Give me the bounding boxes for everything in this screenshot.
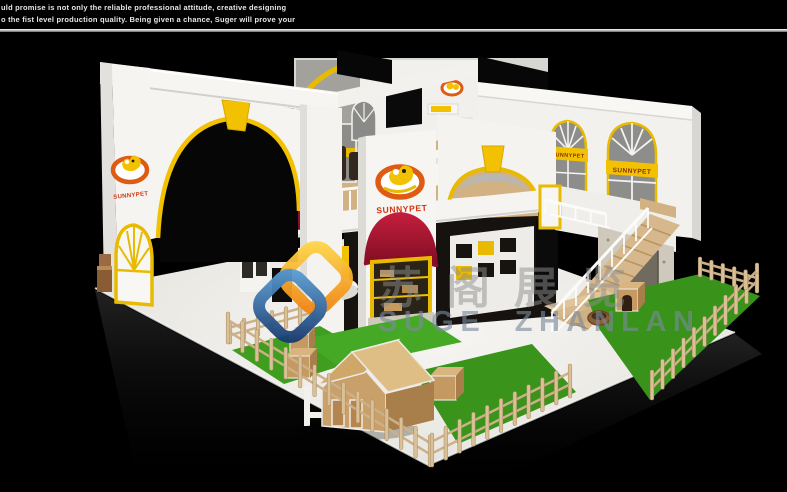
- page: uld promise is not only the reliable pro…: [0, 0, 787, 492]
- yellow-door-frame: [540, 186, 560, 228]
- sunnypet-logo-left: SUNNYPET: [113, 156, 149, 201]
- crate-small-left: [97, 254, 112, 292]
- crate-front: [430, 367, 464, 400]
- left-pillar: SUNNYPET: [97, 62, 152, 305]
- white-mini-wall: [304, 386, 310, 426]
- sunnypet-logo-center: SUNNYPET: [376, 165, 428, 215]
- watermark-en-text: SUGE ZHANLAN: [378, 306, 700, 338]
- booth-render: SUNNYPET SUNNYPET: [0, 0, 787, 492]
- keystone-mezzanine: [482, 146, 504, 172]
- fan-window-left: [116, 225, 152, 305]
- sunnypet-logo-small: [442, 81, 462, 95]
- arch-window-2: SUNNYPET: [606, 123, 658, 205]
